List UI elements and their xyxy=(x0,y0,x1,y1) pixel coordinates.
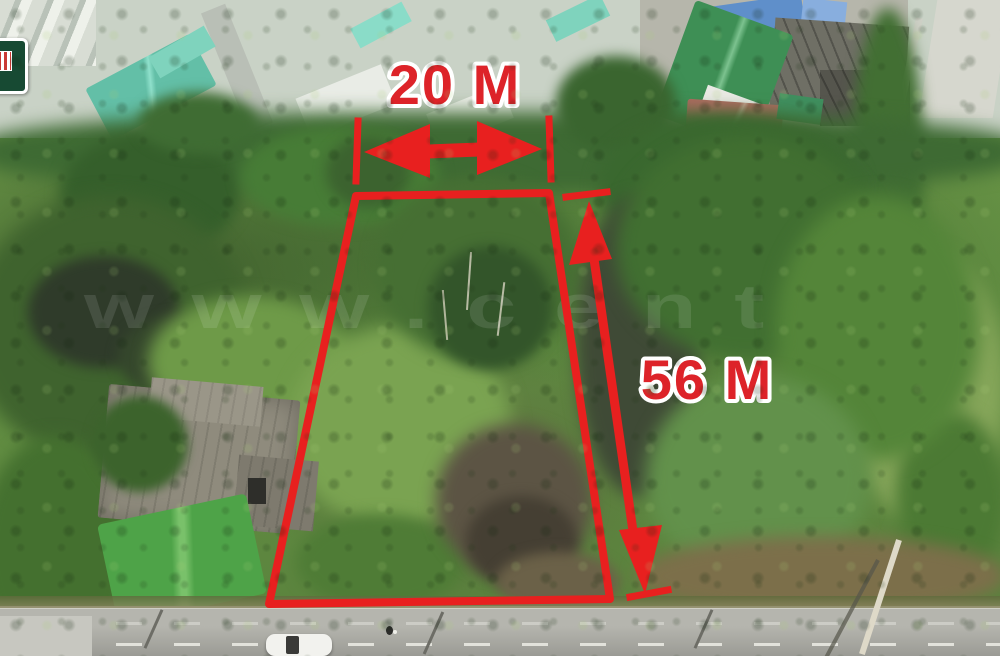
width-arrow xyxy=(356,119,551,181)
plot-boundary xyxy=(269,193,610,604)
width-dimension-label: 20 M xyxy=(389,53,522,116)
agency-logo-badge xyxy=(0,38,28,94)
agency-logo-icon xyxy=(0,51,12,71)
aerial-photo: www.cent 20 M 56 M xyxy=(0,0,1000,656)
depth-dimension-label: 56 M xyxy=(641,348,774,411)
annotation-overlay: 20 M 56 M xyxy=(0,0,1000,656)
